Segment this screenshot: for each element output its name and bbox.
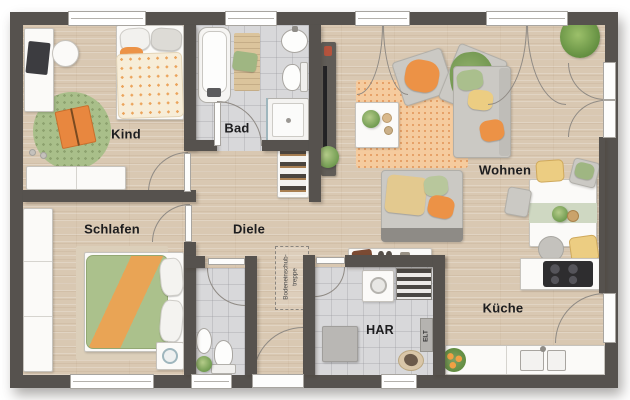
electrical-label: ELT <box>423 330 430 342</box>
attic-stairs-label: Bodeneinschub-treppe <box>283 254 300 300</box>
kitchen-door-leaf <box>603 293 616 343</box>
wall-wc-top-left <box>184 256 205 268</box>
window-har <box>381 374 417 389</box>
window-kind <box>68 11 146 26</box>
wall-kind-bad <box>184 25 196 150</box>
wall-right-jog <box>599 137 605 293</box>
wall-bad-wohnen <box>309 25 321 202</box>
attic-stairs-line2: treppe <box>291 254 300 300</box>
floor-plan: Bodeneinschub-treppe ELT <box>0 0 630 400</box>
wall-har-kueche <box>433 255 445 375</box>
window-bad <box>225 11 277 26</box>
har-door-leaf <box>316 257 345 264</box>
wall-bad-bottom-left <box>184 140 217 151</box>
room-label-diele: Diele <box>233 222 265 237</box>
wall-bad-bottom-right <box>262 140 309 151</box>
room-label-wohnen: Wohnen <box>479 163 531 178</box>
kind-door-leaf <box>184 153 191 192</box>
room-label-bad: Bad <box>224 121 249 136</box>
wall-har-top <box>345 255 445 267</box>
room-label-har: HAR <box>366 323 394 337</box>
window-wc <box>191 374 232 389</box>
bad-door-leaf <box>214 102 221 146</box>
window-wohnen-right <box>486 11 568 26</box>
wall-wc-right <box>245 256 257 375</box>
room-label-kueche: Küche <box>483 301 524 316</box>
wc-door-leaf <box>208 258 245 265</box>
terrace-door-leaf-upper <box>603 62 616 100</box>
wall-har-left <box>303 255 315 375</box>
entrance-door-leaf <box>252 374 304 388</box>
terrace-door-leaf-lower <box>603 100 616 138</box>
window-wohnen-left <box>355 11 410 26</box>
room-label-kind: Kind <box>111 127 141 142</box>
attic-stairs-line1: Bodeneinschub- <box>283 254 292 300</box>
schlafen-door-leaf <box>185 205 192 242</box>
window-schlafen <box>70 374 154 389</box>
room-label-schlafen: Schlafen <box>84 222 140 237</box>
wall-kind-schlafen <box>23 190 196 202</box>
